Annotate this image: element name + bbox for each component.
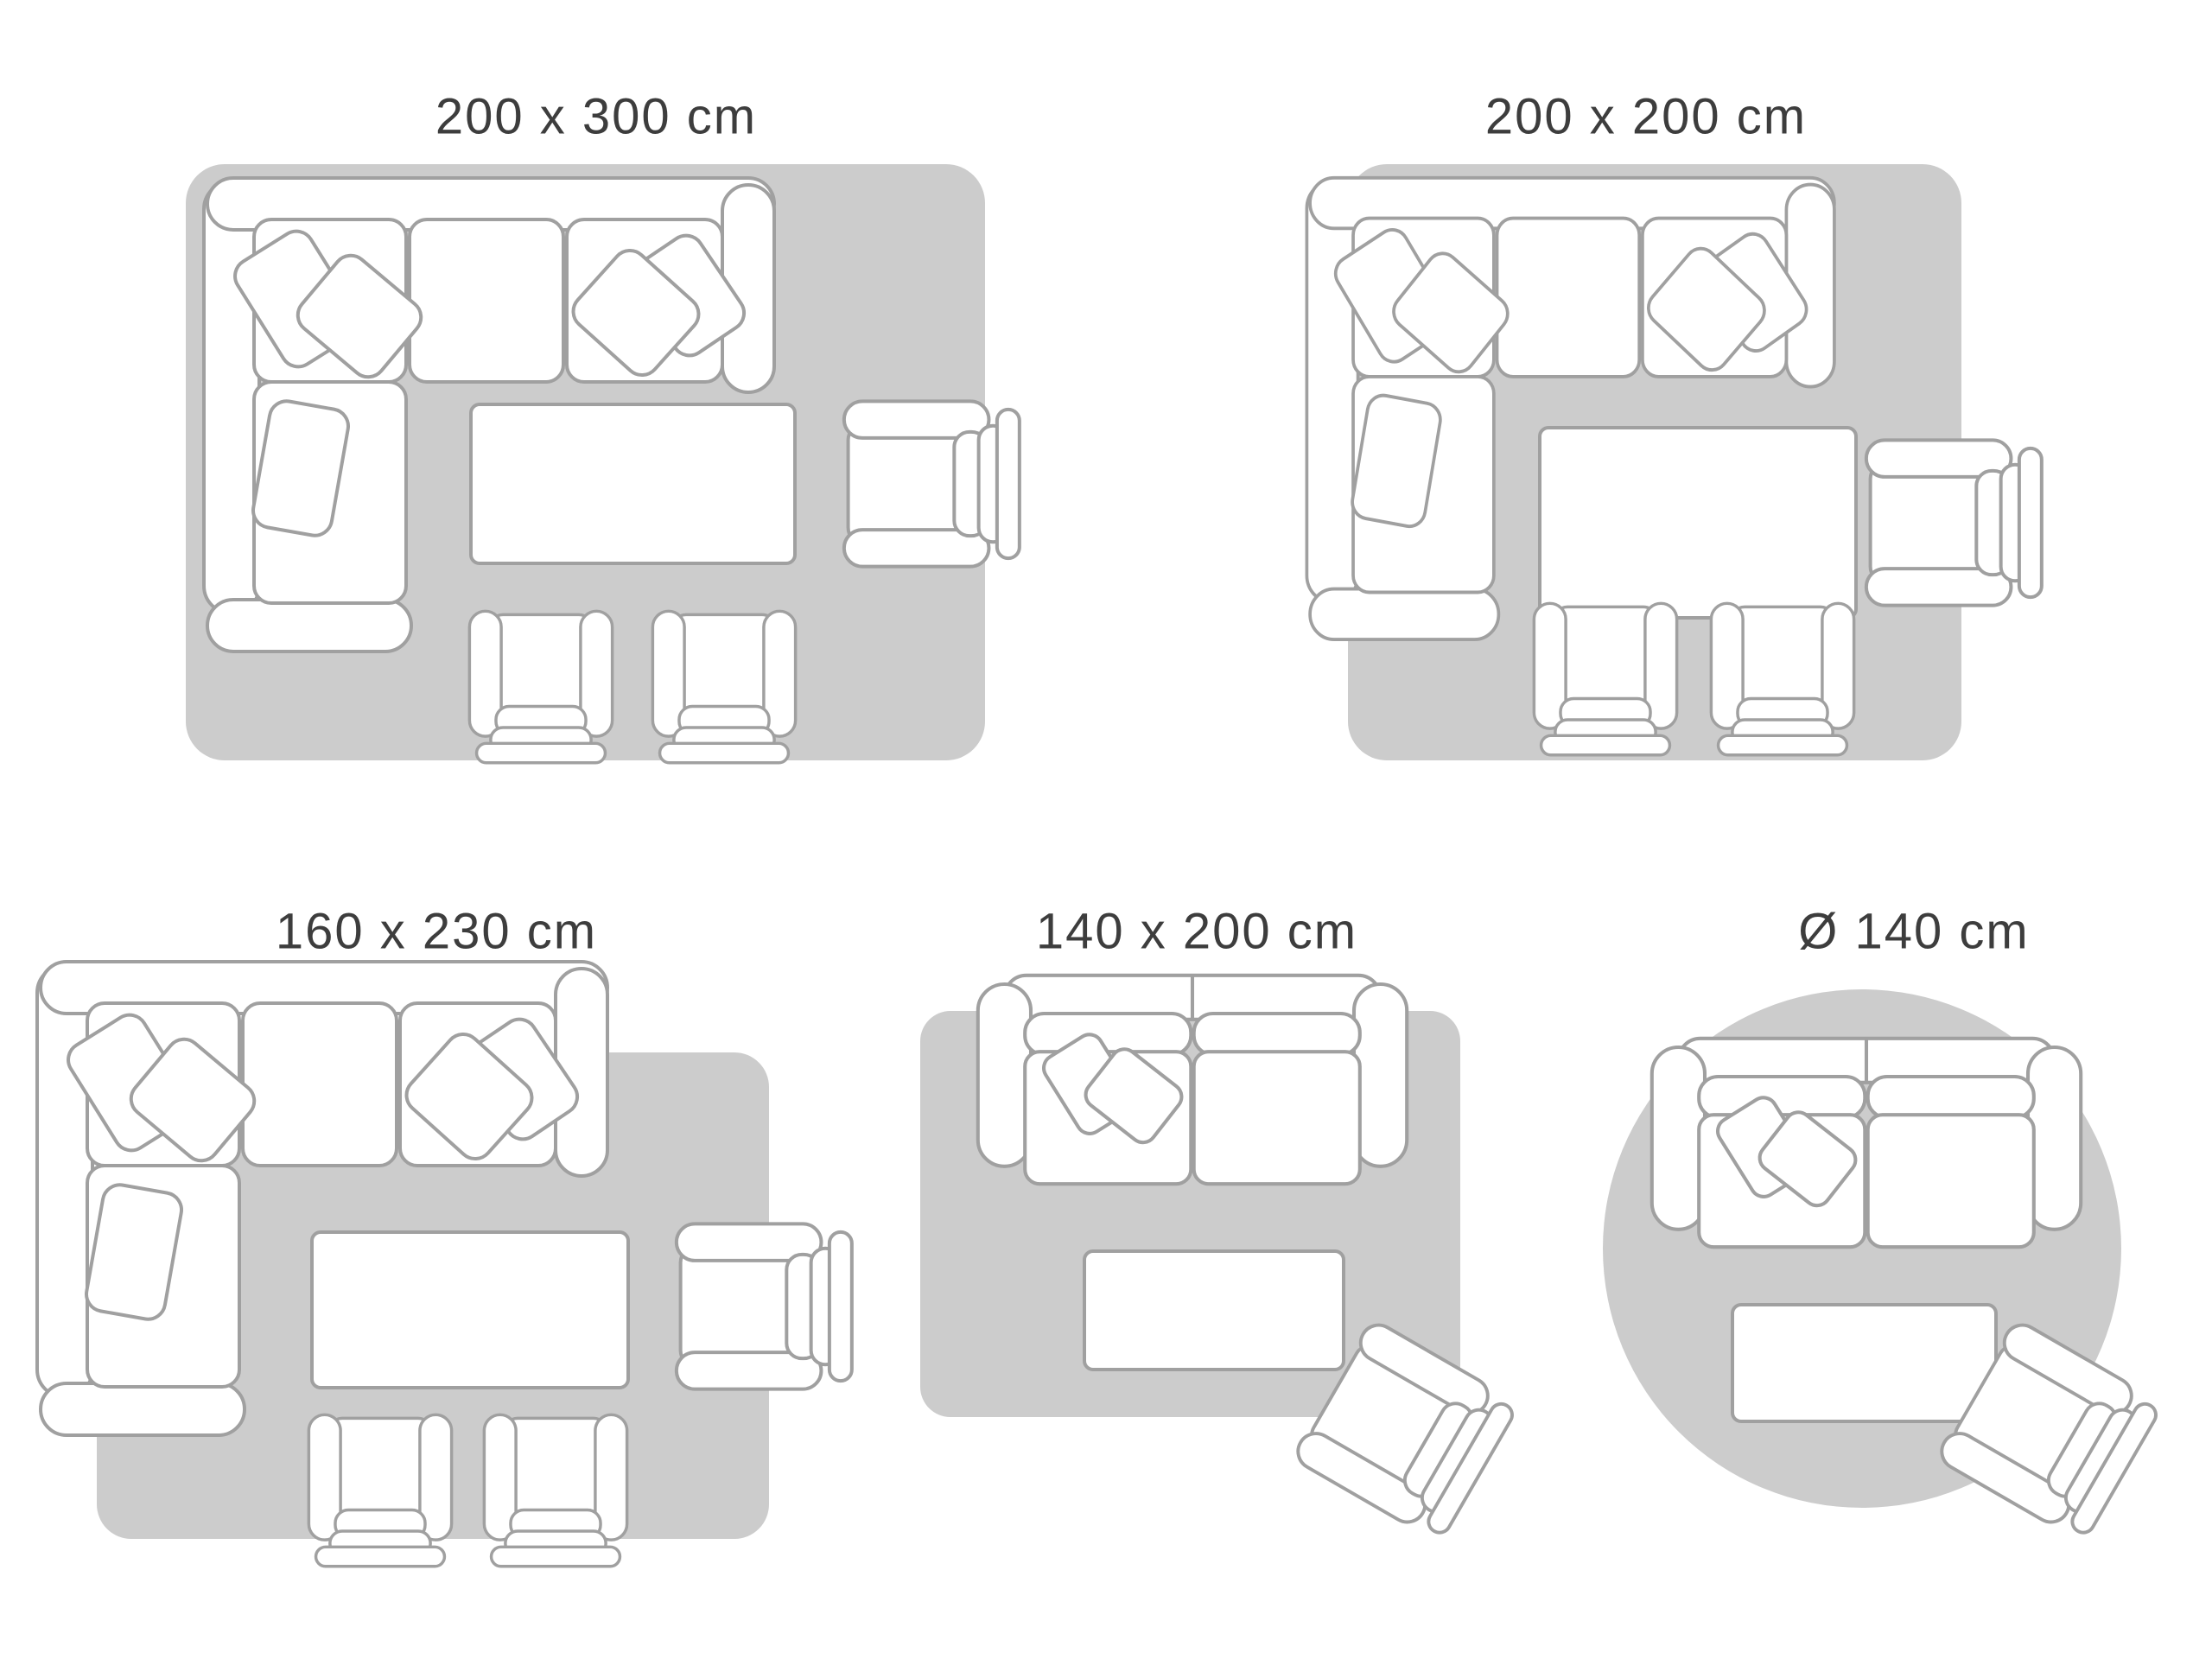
- layout-illustration-160x230: [17, 942, 890, 1642]
- armchair-right: [677, 1224, 852, 1389]
- armchair-bottom-left: [308, 1414, 451, 1566]
- armchair-bottom-left: [1534, 603, 1676, 754]
- armchair-bottom-right: [652, 611, 795, 762]
- armchair-bottom-left: [469, 611, 612, 762]
- rug-size-guide: 200 x 300 cm 200 x 200 cm 160 x 230 cm 1…: [0, 0, 2212, 1659]
- layout-illustration-200x200: [1253, 138, 2126, 812]
- layout-illustration-d140: [1555, 942, 2212, 1642]
- coffee-table: [471, 404, 795, 563]
- coffee-table: [312, 1232, 628, 1388]
- armchair-bottom-right: [484, 1414, 626, 1566]
- coffee-table: [1732, 1305, 1996, 1421]
- layout-illustration-140x200: [899, 942, 1555, 1642]
- size-label-200x300: 200 x 300 cm: [435, 88, 757, 146]
- coffee-table: [1084, 1251, 1344, 1370]
- size-label-200x200: 200 x 200 cm: [1485, 88, 1807, 146]
- armchair-bottom-right: [1711, 603, 1853, 754]
- two-seater-sofa: [978, 976, 1407, 1184]
- coffee-table: [1540, 428, 1856, 618]
- layout-illustration-200x300: [121, 138, 1071, 812]
- armchair-right: [1866, 440, 2042, 605]
- armchair-right: [844, 401, 1020, 566]
- two-seater-sofa: [1652, 1039, 2081, 1247]
